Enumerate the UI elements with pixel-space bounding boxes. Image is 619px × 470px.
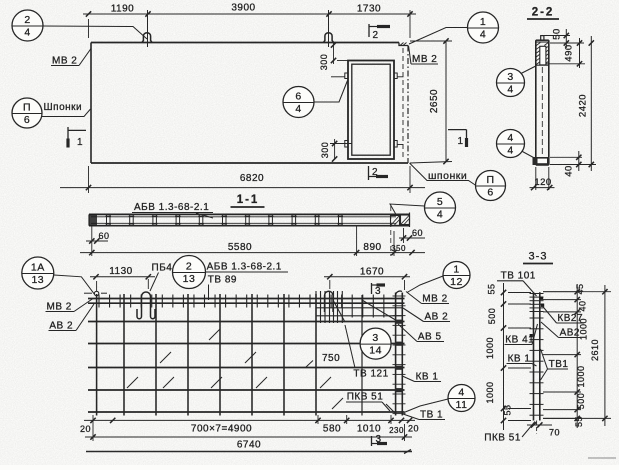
svg-text:4: 4 xyxy=(507,84,513,96)
svg-text:3: 3 xyxy=(376,434,382,445)
svg-text:ТВ 89: ТВ 89 xyxy=(208,275,237,286)
svg-text:3900: 3900 xyxy=(231,3,255,14)
svg-text:АБВ 1.3-68-2.1: АБВ 1.3-68-2.1 xyxy=(134,202,209,213)
svg-text:П: П xyxy=(23,102,31,114)
svg-text:45: 45 xyxy=(575,283,585,294)
svg-text:2-2: 2-2 xyxy=(532,7,555,19)
svg-text:13: 13 xyxy=(31,274,44,286)
svg-text:АВ2: АВ2 xyxy=(560,328,580,339)
svg-text:1-1: 1-1 xyxy=(237,194,260,206)
svg-text:шпонки: шпонки xyxy=(428,170,467,182)
svg-text:1: 1 xyxy=(77,137,83,148)
svg-text:500: 500 xyxy=(487,308,497,325)
svg-text:700×7=4900: 700×7=4900 xyxy=(191,424,252,435)
svg-text:230: 230 xyxy=(389,426,404,435)
svg-text:4: 4 xyxy=(458,387,464,399)
svg-text:20: 20 xyxy=(408,424,419,434)
svg-text:1670: 1670 xyxy=(360,267,384,278)
svg-text:1: 1 xyxy=(453,264,459,276)
svg-text:300: 300 xyxy=(319,54,329,71)
svg-text:2610: 2610 xyxy=(590,339,600,361)
svg-text:4: 4 xyxy=(480,29,486,41)
svg-text:КВ 41: КВ 41 xyxy=(505,335,534,346)
svg-text:ТВ 1: ТВ 1 xyxy=(420,410,443,421)
svg-text:1010: 1010 xyxy=(357,424,381,435)
svg-text:40: 40 xyxy=(564,165,575,177)
svg-text:4: 4 xyxy=(295,103,301,115)
svg-text:КВ 1: КВ 1 xyxy=(416,372,439,383)
svg-text:1А: 1А xyxy=(31,262,45,274)
svg-text:ТВ 101: ТВ 101 xyxy=(501,271,536,282)
svg-text:1730: 1730 xyxy=(357,4,381,15)
svg-text:МВ 2: МВ 2 xyxy=(47,302,72,313)
svg-text:13: 13 xyxy=(183,273,196,285)
svg-text:3: 3 xyxy=(507,71,513,83)
svg-text:300: 300 xyxy=(320,142,330,159)
svg-text:14: 14 xyxy=(369,345,382,357)
svg-text:4: 4 xyxy=(24,27,30,39)
svg-text:ПКВ 51: ПКВ 51 xyxy=(347,392,384,403)
svg-text:4: 4 xyxy=(437,209,443,221)
svg-text:70: 70 xyxy=(549,428,560,438)
svg-text:580: 580 xyxy=(323,424,341,435)
svg-text:5: 5 xyxy=(437,196,443,208)
svg-text:20: 20 xyxy=(80,424,91,434)
svg-text:1: 1 xyxy=(458,136,464,147)
svg-text:ТВ 121: ТВ 121 xyxy=(353,369,388,380)
svg-text:3-3: 3-3 xyxy=(529,251,548,263)
svg-text:КВ 1: КВ 1 xyxy=(508,354,531,365)
svg-text:2650: 2650 xyxy=(429,89,440,113)
svg-text:КВ27: КВ27 xyxy=(557,313,583,324)
svg-text:4: 4 xyxy=(507,132,513,144)
svg-text:890: 890 xyxy=(363,242,381,253)
svg-text:55: 55 xyxy=(503,404,513,415)
svg-text:АВ 5: АВ 5 xyxy=(418,332,442,343)
svg-text:1130: 1130 xyxy=(109,266,133,277)
svg-text:2: 2 xyxy=(372,167,378,178)
svg-text:1000: 1000 xyxy=(485,337,495,359)
svg-text:60: 60 xyxy=(98,231,109,241)
svg-text:6740: 6740 xyxy=(237,440,261,451)
svg-text:2: 2 xyxy=(186,261,192,273)
svg-text:АБВ 1.3-68-2.1: АБВ 1.3-68-2.1 xyxy=(207,262,282,273)
svg-text:АВ 2: АВ 2 xyxy=(49,321,73,332)
svg-text:3: 3 xyxy=(372,332,378,344)
svg-text:1000: 1000 xyxy=(576,365,586,387)
svg-text:60: 60 xyxy=(412,228,423,238)
svg-text:1: 1 xyxy=(480,16,486,28)
svg-text:АВ 2: АВ 2 xyxy=(425,312,449,323)
svg-text:350: 350 xyxy=(391,244,406,253)
svg-text:П: П xyxy=(486,174,494,186)
svg-text:МВ 2: МВ 2 xyxy=(52,56,77,67)
svg-text:1190: 1190 xyxy=(111,4,135,15)
svg-text:4: 4 xyxy=(507,145,513,157)
svg-text:55: 55 xyxy=(487,283,497,294)
svg-text:5580: 5580 xyxy=(228,242,252,253)
svg-text:11: 11 xyxy=(456,399,468,411)
svg-text:2420: 2420 xyxy=(578,94,589,117)
svg-text:МВ 2: МВ 2 xyxy=(412,54,437,65)
svg-text:6: 6 xyxy=(295,91,301,103)
svg-text:6820: 6820 xyxy=(240,173,264,184)
svg-text:50: 50 xyxy=(552,28,563,40)
svg-text:500: 500 xyxy=(576,393,586,410)
svg-text:2: 2 xyxy=(24,14,30,26)
svg-text:Шпонки: Шпонки xyxy=(44,102,83,113)
svg-text:2: 2 xyxy=(373,30,379,41)
svg-text:6: 6 xyxy=(24,114,30,126)
svg-text:3: 3 xyxy=(375,286,381,297)
svg-text:ПБ4: ПБ4 xyxy=(152,263,173,274)
svg-text:120: 120 xyxy=(534,177,551,188)
svg-text:1000: 1000 xyxy=(485,381,495,403)
svg-text:12: 12 xyxy=(450,276,463,288)
svg-text:ТВ1: ТВ1 xyxy=(549,359,569,370)
svg-text:МВ 2: МВ 2 xyxy=(422,294,447,305)
svg-text:490: 490 xyxy=(564,44,575,61)
svg-text:6: 6 xyxy=(487,187,493,199)
svg-text:750: 750 xyxy=(322,353,340,364)
svg-text:40: 40 xyxy=(578,300,588,311)
svg-text:55: 55 xyxy=(574,416,584,427)
svg-text:ПКВ 51: ПКВ 51 xyxy=(484,433,521,444)
